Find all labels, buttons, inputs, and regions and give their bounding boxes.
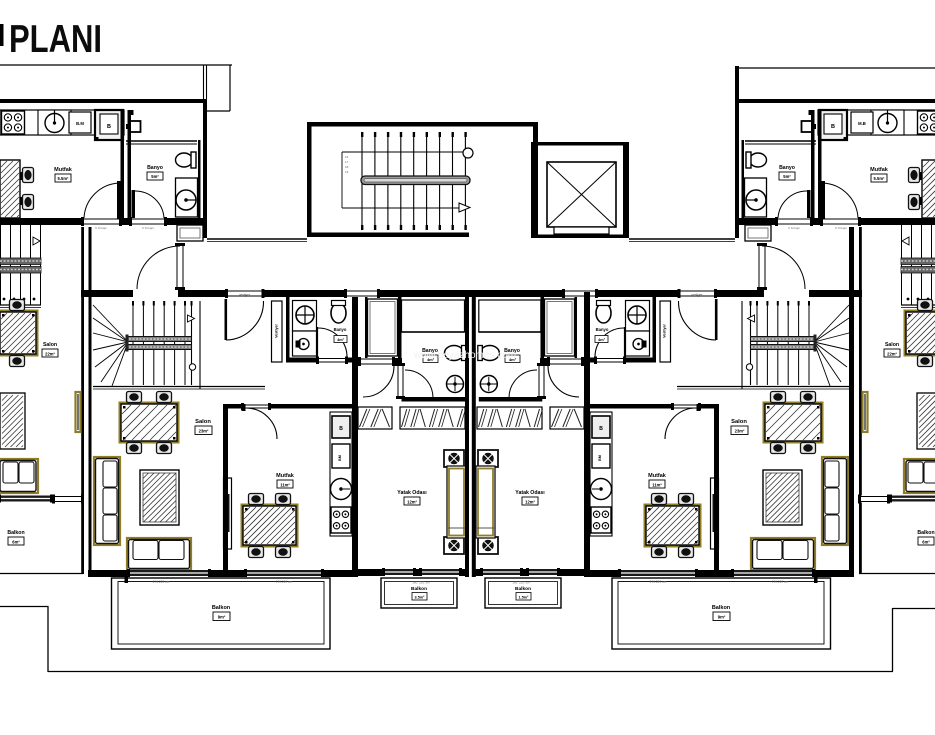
svg-text:11m²: 11m²: [280, 483, 290, 488]
svg-text:3.5m²: 3.5m²: [415, 596, 426, 600]
svg-text:Balkon: Balkon: [917, 530, 934, 536]
svg-text:vestiyer: vestiyer: [239, 293, 251, 297]
svg-text:Mutfak: Mutfak: [870, 167, 889, 173]
svg-text:Banyo: Banyo: [596, 327, 609, 332]
svg-text:170.220 cm: 170.220 cm: [276, 580, 293, 584]
svg-text:Vestiyer: Vestiyer: [275, 324, 279, 338]
svg-text:BM: BM: [598, 455, 602, 461]
svg-text:Mutfak: Mutfak: [54, 167, 73, 173]
svg-text:Yatak Odası: Yatak Odası: [397, 490, 427, 496]
svg-text:K.M.kapi: K.M.kapi: [142, 226, 154, 230]
svg-text:K.M.kapi: K.M.kapi: [788, 226, 800, 230]
svg-text:B.M: B.M: [76, 121, 84, 126]
svg-text:Balkon: Balkon: [7, 530, 24, 536]
svg-text:Salon: Salon: [885, 342, 899, 348]
svg-text:5.5m²: 5.5m²: [58, 176, 70, 181]
svg-text:PLANI: PLANI: [9, 18, 102, 61]
svg-text:5m²: 5m²: [151, 174, 159, 179]
svg-text:K.M.kapi: K.M.kapi: [835, 226, 847, 230]
svg-text:Salon: Salon: [43, 342, 57, 348]
svg-text:Salon: Salon: [731, 419, 747, 425]
svg-text:Balkon: Balkon: [411, 586, 427, 592]
svg-text:Balkon: Balkon: [515, 586, 531, 592]
svg-text:5m²: 5m²: [783, 174, 791, 179]
svg-text:170.220 cm: 170.220 cm: [772, 580, 789, 584]
svg-text:22m²: 22m²: [45, 352, 55, 357]
svg-text:160. 220. cm: 160. 220. cm: [412, 581, 430, 585]
svg-text:K.M.kapi: K.M.kapi: [95, 226, 107, 230]
svg-text:Banyo: Banyo: [147, 165, 163, 171]
svg-text:6m²: 6m²: [12, 540, 20, 545]
svg-text:4m²: 4m²: [337, 338, 344, 342]
svg-text:12m²: 12m²: [525, 500, 535, 505]
svg-text:1.5m²: 1.5m²: [519, 596, 530, 600]
svg-text:Banyo: Banyo: [779, 165, 795, 171]
svg-text:B: B: [107, 124, 111, 130]
svg-text:B: B: [339, 426, 343, 432]
svg-text:Balkon: Balkon: [712, 605, 731, 611]
svg-text:19: 19: [345, 170, 349, 174]
svg-text:9m²: 9m²: [218, 615, 226, 620]
svg-text:9m²: 9m²: [718, 615, 726, 620]
svg-text:18: 18: [345, 165, 349, 169]
svg-text:Salon: Salon: [195, 419, 211, 425]
svg-text:BM: BM: [338, 455, 342, 461]
svg-text:Yatak Odası: Yatak Odası: [515, 490, 545, 496]
svg-text:B: B: [599, 426, 603, 432]
svg-text:www.beyazhomes.com: www.beyazhomes.com: [413, 350, 516, 361]
svg-text:M.B: M.B: [858, 121, 866, 126]
svg-text:170.220 cm: 170.220 cm: [650, 580, 667, 584]
svg-text:4m²: 4m²: [598, 338, 605, 342]
svg-text:23m²: 23m²: [199, 429, 209, 434]
svg-text:16: 16: [345, 155, 349, 159]
svg-text:Banyo: Banyo: [334, 327, 347, 332]
svg-text:Mutfak: Mutfak: [276, 473, 295, 479]
svg-text:160. 220. cm: 160. 220. cm: [512, 581, 530, 585]
svg-text:17: 17: [345, 160, 349, 164]
svg-text:11m²: 11m²: [652, 483, 662, 488]
svg-text:Vestiyer: Vestiyer: [663, 324, 667, 338]
svg-text:Mutfak: Mutfak: [648, 473, 667, 479]
svg-text:B: B: [831, 124, 835, 130]
svg-text:12m²: 12m²: [407, 500, 417, 505]
svg-text:6m²: 6m²: [922, 540, 930, 545]
svg-text:23m²: 23m²: [735, 429, 745, 434]
svg-text:Balkon: Balkon: [212, 605, 231, 611]
svg-text:5.5m²: 5.5m²: [874, 176, 886, 181]
svg-text:22m²: 22m²: [887, 352, 897, 357]
svg-text:170.220 cm: 170.220 cm: [153, 580, 170, 584]
svg-text:vestiyer: vestiyer: [692, 293, 704, 297]
